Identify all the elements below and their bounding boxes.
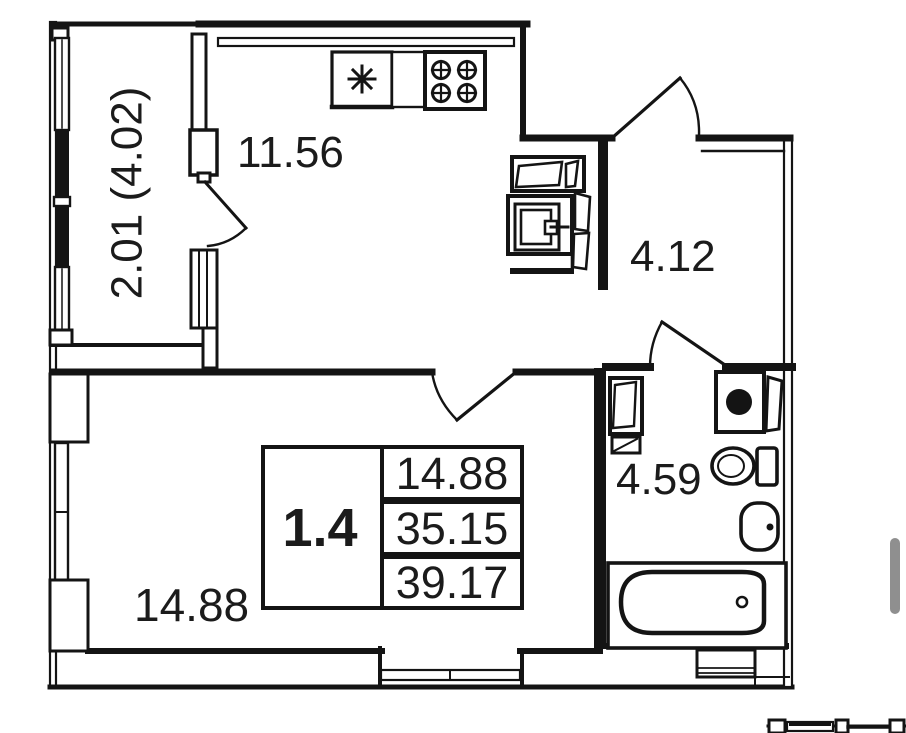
- balcony-door-hinge: [198, 173, 210, 182]
- counter-slat: [566, 161, 578, 187]
- washing-machine-flap: [766, 377, 782, 431]
- counter-segment: [392, 52, 425, 107]
- balcony-partition-pier: [190, 130, 217, 175]
- counter-inner: [516, 162, 562, 187]
- toilet-icon: [712, 448, 777, 485]
- bath-door-arc: [650, 322, 662, 367]
- balcony-glazing-dark-1: [55, 131, 69, 197]
- vent-shaft: [697, 650, 789, 684]
- floor-plan-svg: 2.01 (4.02) 11.56 4.12 14.88 4.59 1.4 14…: [0, 0, 906, 733]
- sink-icon: [349, 66, 375, 92]
- floor-plan-page: 2.01 (4.02) 11.56 4.12 14.88 4.59 1.4 14…: [0, 0, 906, 733]
- entrance-door-leaf: [612, 78, 680, 138]
- area-value-total: 39.17: [396, 557, 509, 608]
- room-west-pier-bottom: [50, 580, 88, 651]
- wash-basin-icon: [741, 503, 778, 550]
- bathtub-icon: [621, 572, 764, 633]
- water-heater-inner: [613, 382, 636, 428]
- unit-type-label: 1.4: [282, 498, 357, 558]
- room-door-leaf: [457, 372, 516, 420]
- room-door-arc: [432, 372, 457, 420]
- balcony-door-arc: [208, 228, 246, 246]
- area-value-living: 35.15: [396, 503, 509, 554]
- balcony-pier-bottom: [50, 330, 72, 345]
- balcony-door-leaf: [205, 182, 246, 228]
- kitchen-west-wall-piece: [203, 328, 217, 368]
- hallway-area-label: 4.12: [630, 232, 716, 281]
- stove-icon: [425, 52, 485, 109]
- bathroom-area-label: 4.59: [616, 455, 702, 504]
- balcony-glazing-dark-2: [55, 206, 69, 267]
- balcony-glazing-joint: [54, 197, 70, 206]
- kitchen-hall-divider: [598, 138, 608, 290]
- area-value-room: 14.88: [396, 448, 509, 499]
- balcony-area-label: 2.01 (4.02): [103, 87, 152, 300]
- room-bath-divider: [594, 368, 606, 648]
- appliance-slat-1: [575, 193, 590, 231]
- key-plan-fragment: [768, 720, 906, 733]
- room-west-pier-top: [50, 374, 88, 442]
- appliance-base-bar: [510, 268, 574, 274]
- kitchen-area-label: 11.56: [237, 128, 344, 177]
- hall-appliances: [508, 157, 590, 274]
- scrollbar-thumb[interactable]: [890, 538, 900, 614]
- balcony-kitchen-window: [191, 250, 217, 328]
- kitchen: [332, 52, 485, 109]
- bath-door-leaf: [662, 322, 728, 367]
- appliance-slat-2: [573, 233, 589, 269]
- washing-machine-door: [726, 389, 752, 415]
- entrance-door-arc: [680, 78, 699, 135]
- room-area-label: 14.88: [134, 579, 249, 631]
- kitchen-window: [218, 38, 514, 46]
- balcony-partition-wall: [192, 34, 206, 130]
